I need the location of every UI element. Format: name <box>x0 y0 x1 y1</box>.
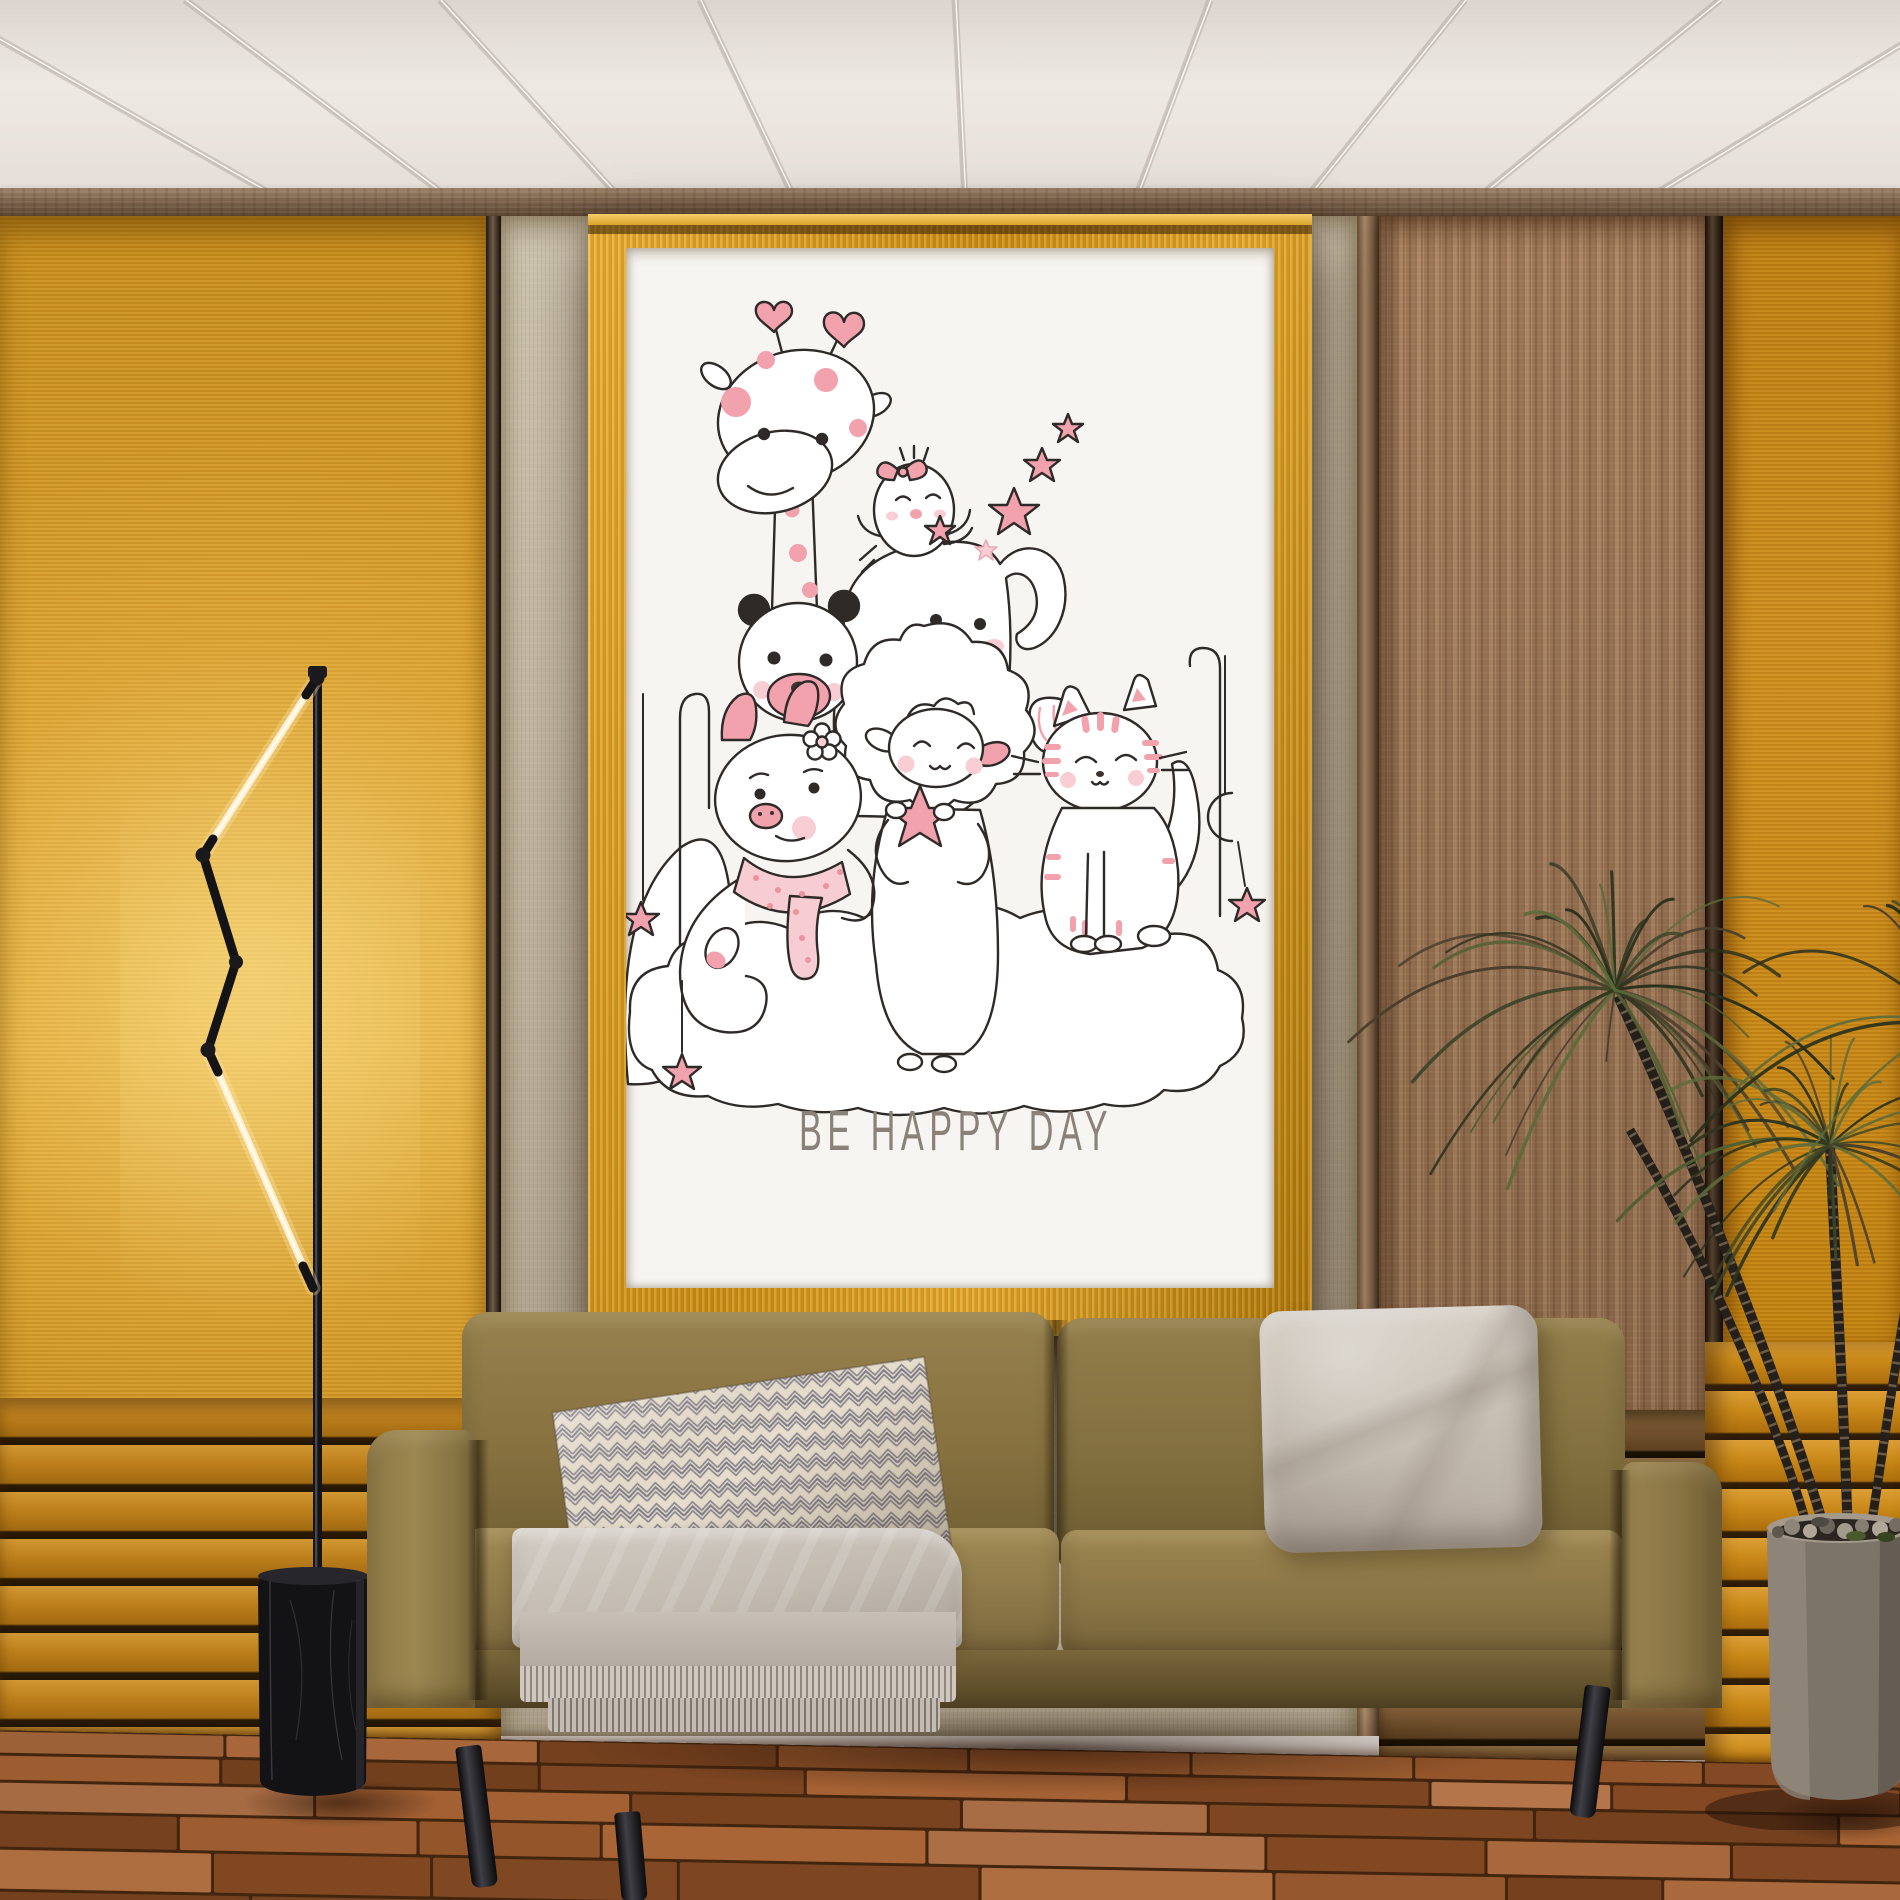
lamp-base <box>258 1567 368 1796</box>
poster-text: BE HAPPY DAY <box>799 1099 1113 1162</box>
poster-caption: BE HAPPY DAY <box>799 1099 1113 1162</box>
blanket-fringe-lower <box>548 1698 940 1732</box>
throw-blanket-drape <box>520 1612 956 1670</box>
sofa-leg-back-left <box>614 1811 648 1900</box>
top-stars <box>975 414 1083 560</box>
plant-stems <box>1618 996 1900 1546</box>
concrete-pot <box>1767 1513 1900 1800</box>
poster-canvas: BE HAPPY DAY <box>626 248 1274 1288</box>
sofa-arm-left <box>367 1430 475 1708</box>
blanket-fringe-upper <box>520 1666 956 1702</box>
lamp-glow <box>120 750 420 1330</box>
plank-ceiling <box>0 0 1900 192</box>
potted-plant <box>1300 800 1900 1830</box>
ceiling-strips <box>0 0 1900 192</box>
poster-frame: BE HAPPY DAY <box>588 214 1312 1336</box>
giraffe <box>696 302 894 610</box>
sofa-back-crevice <box>1043 1320 1069 1560</box>
living-room-scene: BE HAPPY DAY <box>0 0 1900 1900</box>
poster-art: BE HAPPY DAY <box>626 248 1274 1288</box>
sofa-leg-front-left <box>455 1744 498 1888</box>
lamp-pole <box>313 674 322 1584</box>
lamp-pole-highlight <box>315 674 317 1584</box>
sofa-arm-crevice-left <box>467 1440 489 1700</box>
